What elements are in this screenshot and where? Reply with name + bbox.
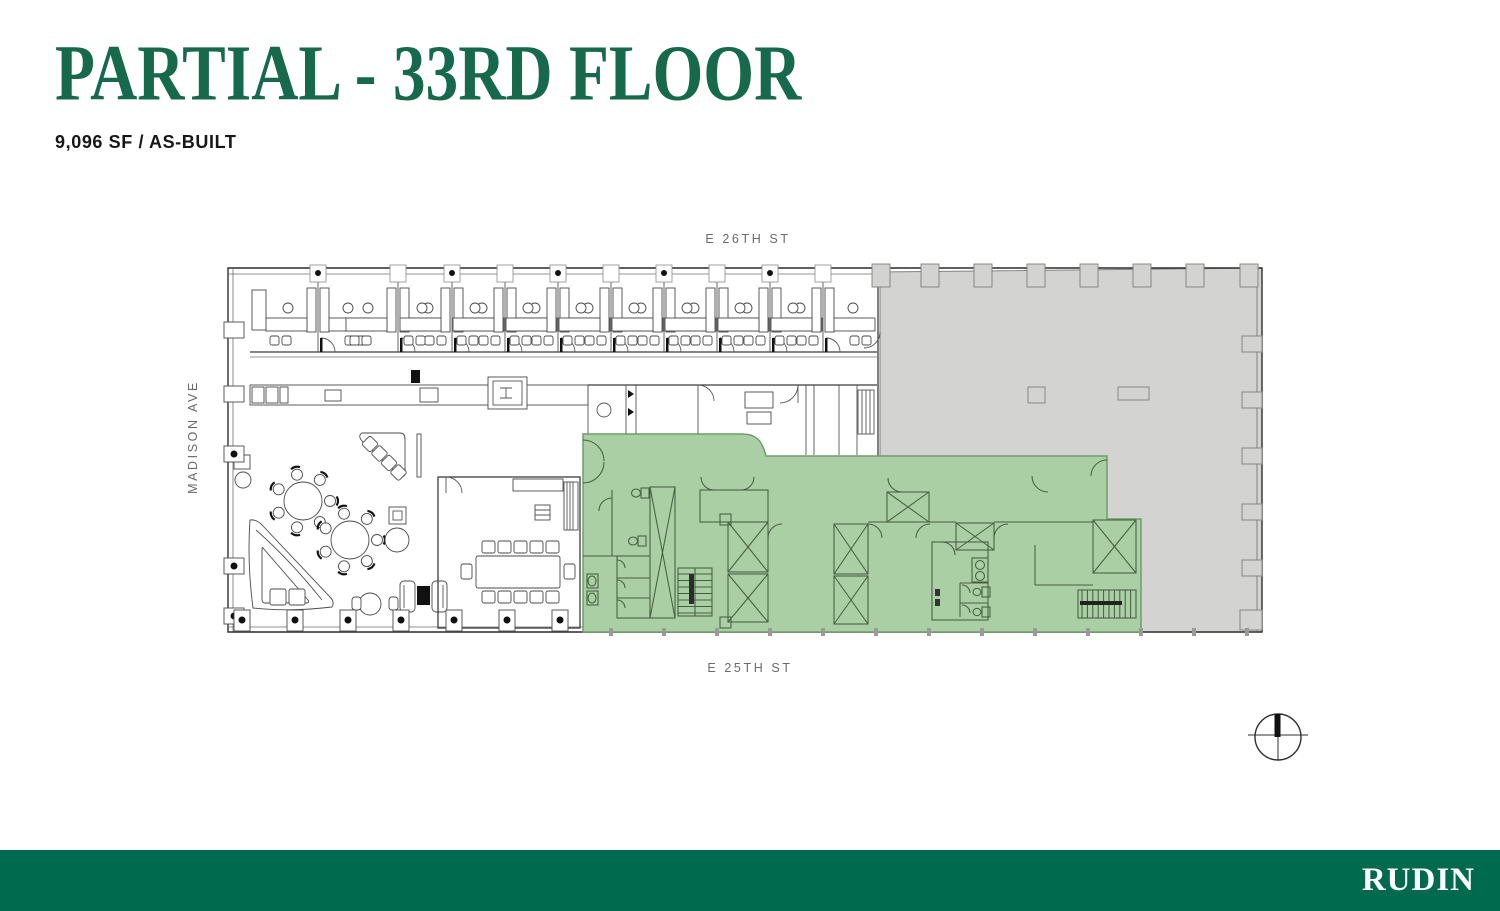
- lounge-furniture: [234, 433, 447, 615]
- rudin-logo: RUDIN: [1362, 862, 1475, 899]
- floor-plan-drawing: E 26TH ST E 25TH ST MADISON AVE: [0, 0, 1500, 911]
- floorplan-page: { "header": { "title": "PARTIAL - 33RD F…: [0, 0, 1500, 911]
- conference-room: [438, 477, 580, 628]
- street-label-bottom: E 25TH ST: [707, 661, 792, 675]
- footer-bar: RUDIN: [0, 850, 1500, 911]
- street-label-top: E 26TH ST: [705, 232, 790, 246]
- pantry-and-service-rooms: [250, 370, 877, 455]
- office-row: [252, 265, 875, 352]
- available-area: [583, 434, 1141, 632]
- compass-icon: [1248, 714, 1308, 760]
- street-label-left: MADISON AVE: [186, 380, 200, 494]
